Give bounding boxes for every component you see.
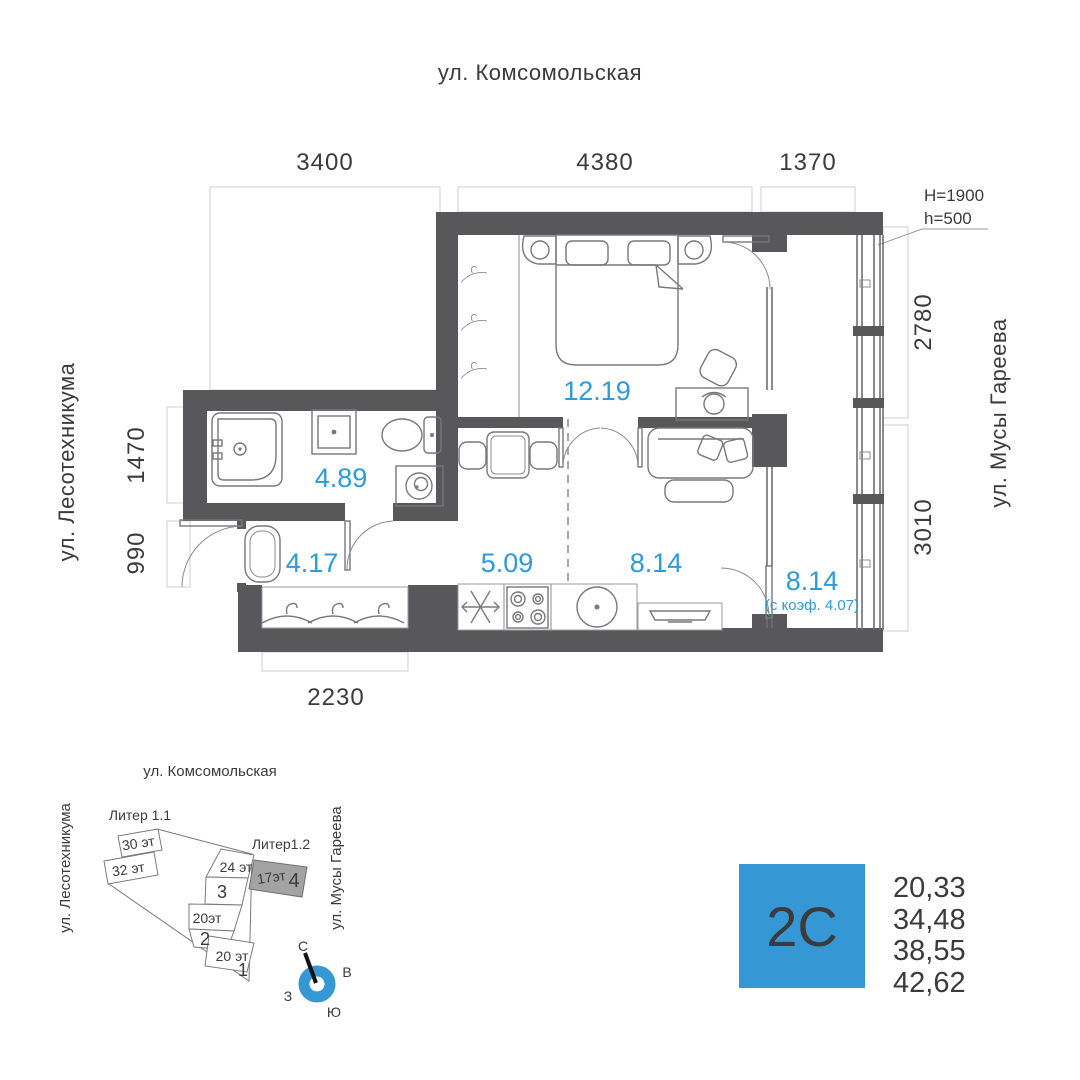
entrance-door-swing (182, 526, 242, 587)
floors-20a: 20эт (193, 910, 222, 926)
legend-value-4: 42,62 (893, 967, 966, 999)
window-note-line2: h=500 (924, 209, 972, 228)
area-bathroom: 4.89 (315, 463, 368, 493)
kitchen-table (487, 432, 529, 478)
legend-value-2: 34,48 (893, 904, 966, 936)
double-door-left-leaf (559, 428, 563, 467)
street-top-label: ул. Комсомольская (438, 60, 642, 85)
kitchen-furniture (458, 432, 637, 630)
kitchen-chair (530, 442, 557, 469)
sofa-pillow (697, 434, 724, 461)
toilet (382, 419, 422, 451)
nightstand-right (678, 236, 711, 264)
washing-machine (396, 466, 443, 506)
compass-south-label: Ю (327, 1004, 341, 1020)
area-balcony: 8.14 (786, 566, 839, 596)
area-hallway: 4.17 (286, 548, 339, 578)
desk-chair (704, 394, 724, 414)
nightstand-left (523, 236, 556, 264)
block-num-3: 3 (217, 882, 227, 902)
area-bedroom: 12.19 (563, 376, 631, 406)
floorplan-canvas: ул. Комсомольская ул. Лесотехникума ул. … (0, 0, 1080, 1080)
area-living: 8.14 (630, 548, 683, 578)
dim-1470: 1470 (123, 426, 150, 483)
bathtub (212, 413, 282, 486)
mini-street-left: ул. Лесотехникума (57, 802, 74, 932)
compass-north-label: С (298, 938, 308, 954)
dim-3400: 3400 (296, 149, 353, 176)
dim-2780: 2780 (910, 293, 937, 350)
sofa (648, 428, 753, 478)
sofa-pillow (723, 438, 748, 463)
street-left-label: ул. Лесотехникума (54, 362, 79, 561)
dim-3010: 3010 (910, 498, 937, 555)
mini-street-top: ул. Комсомольская (143, 763, 276, 780)
dim-4380: 4380 (576, 149, 633, 176)
liter-1-1-label: Литер 1.1 (109, 807, 171, 823)
lamp-right (685, 241, 703, 259)
window-note-leader (878, 229, 988, 245)
liter-1-2-label: Литер1.2 (252, 836, 311, 852)
bed (556, 235, 678, 365)
area-kitchen: 5.09 (481, 548, 534, 578)
ottoman (665, 480, 733, 502)
blanket-fold (656, 265, 683, 289)
pillow (566, 241, 608, 265)
double-door-right-leaf (638, 428, 642, 467)
main-floor-plan: ул. Комсомольская ул. Лесотехникума ул. … (54, 60, 1011, 711)
mini-street-right: ул. Мусы Гареева (328, 806, 345, 930)
double-door-right-swing (601, 428, 638, 467)
legend-value-1: 20,33 (893, 872, 966, 904)
floors-24: 24 эт (220, 859, 253, 875)
kitchen-chair (459, 442, 486, 469)
street-right-label: ул. Мусы Гареева (986, 318, 1011, 507)
wardrobe-niche (262, 587, 408, 628)
block-num-1: 1 (238, 960, 248, 980)
site-mini-plan: ул. Комсомольская ул. Лесотехникума ул. … (57, 763, 352, 1020)
apartment-type-legend: 2С 20,33 34,48 38,55 42,62 (739, 864, 966, 999)
dim-1370: 1370 (779, 149, 836, 176)
block-num-2: 2 (200, 929, 210, 949)
compass-east-label: В (342, 964, 351, 980)
balcony-window-glazing (853, 235, 884, 630)
dim-2230: 2230 (307, 684, 364, 711)
tv-stand (638, 603, 722, 630)
legend-value-3: 38,55 (893, 935, 966, 967)
area-balcony-coef: (с коэф. 4.07) (765, 597, 859, 614)
compass: С В Ю З (284, 938, 352, 1020)
lamp-left (531, 241, 549, 259)
type-plate-label: 2С (766, 895, 838, 958)
dim-990: 990 (123, 531, 150, 574)
living-furniture (638, 428, 753, 630)
armchair (697, 347, 739, 389)
compass-west-label: З (284, 988, 292, 1004)
pillow (628, 241, 670, 265)
window-note-line1: H=1900 (924, 186, 984, 205)
compass-ring (304, 971, 330, 997)
bathroom-door-swing (347, 521, 393, 570)
block-num-4: 4 (288, 870, 299, 892)
living-balcony-door-swing (721, 568, 769, 616)
